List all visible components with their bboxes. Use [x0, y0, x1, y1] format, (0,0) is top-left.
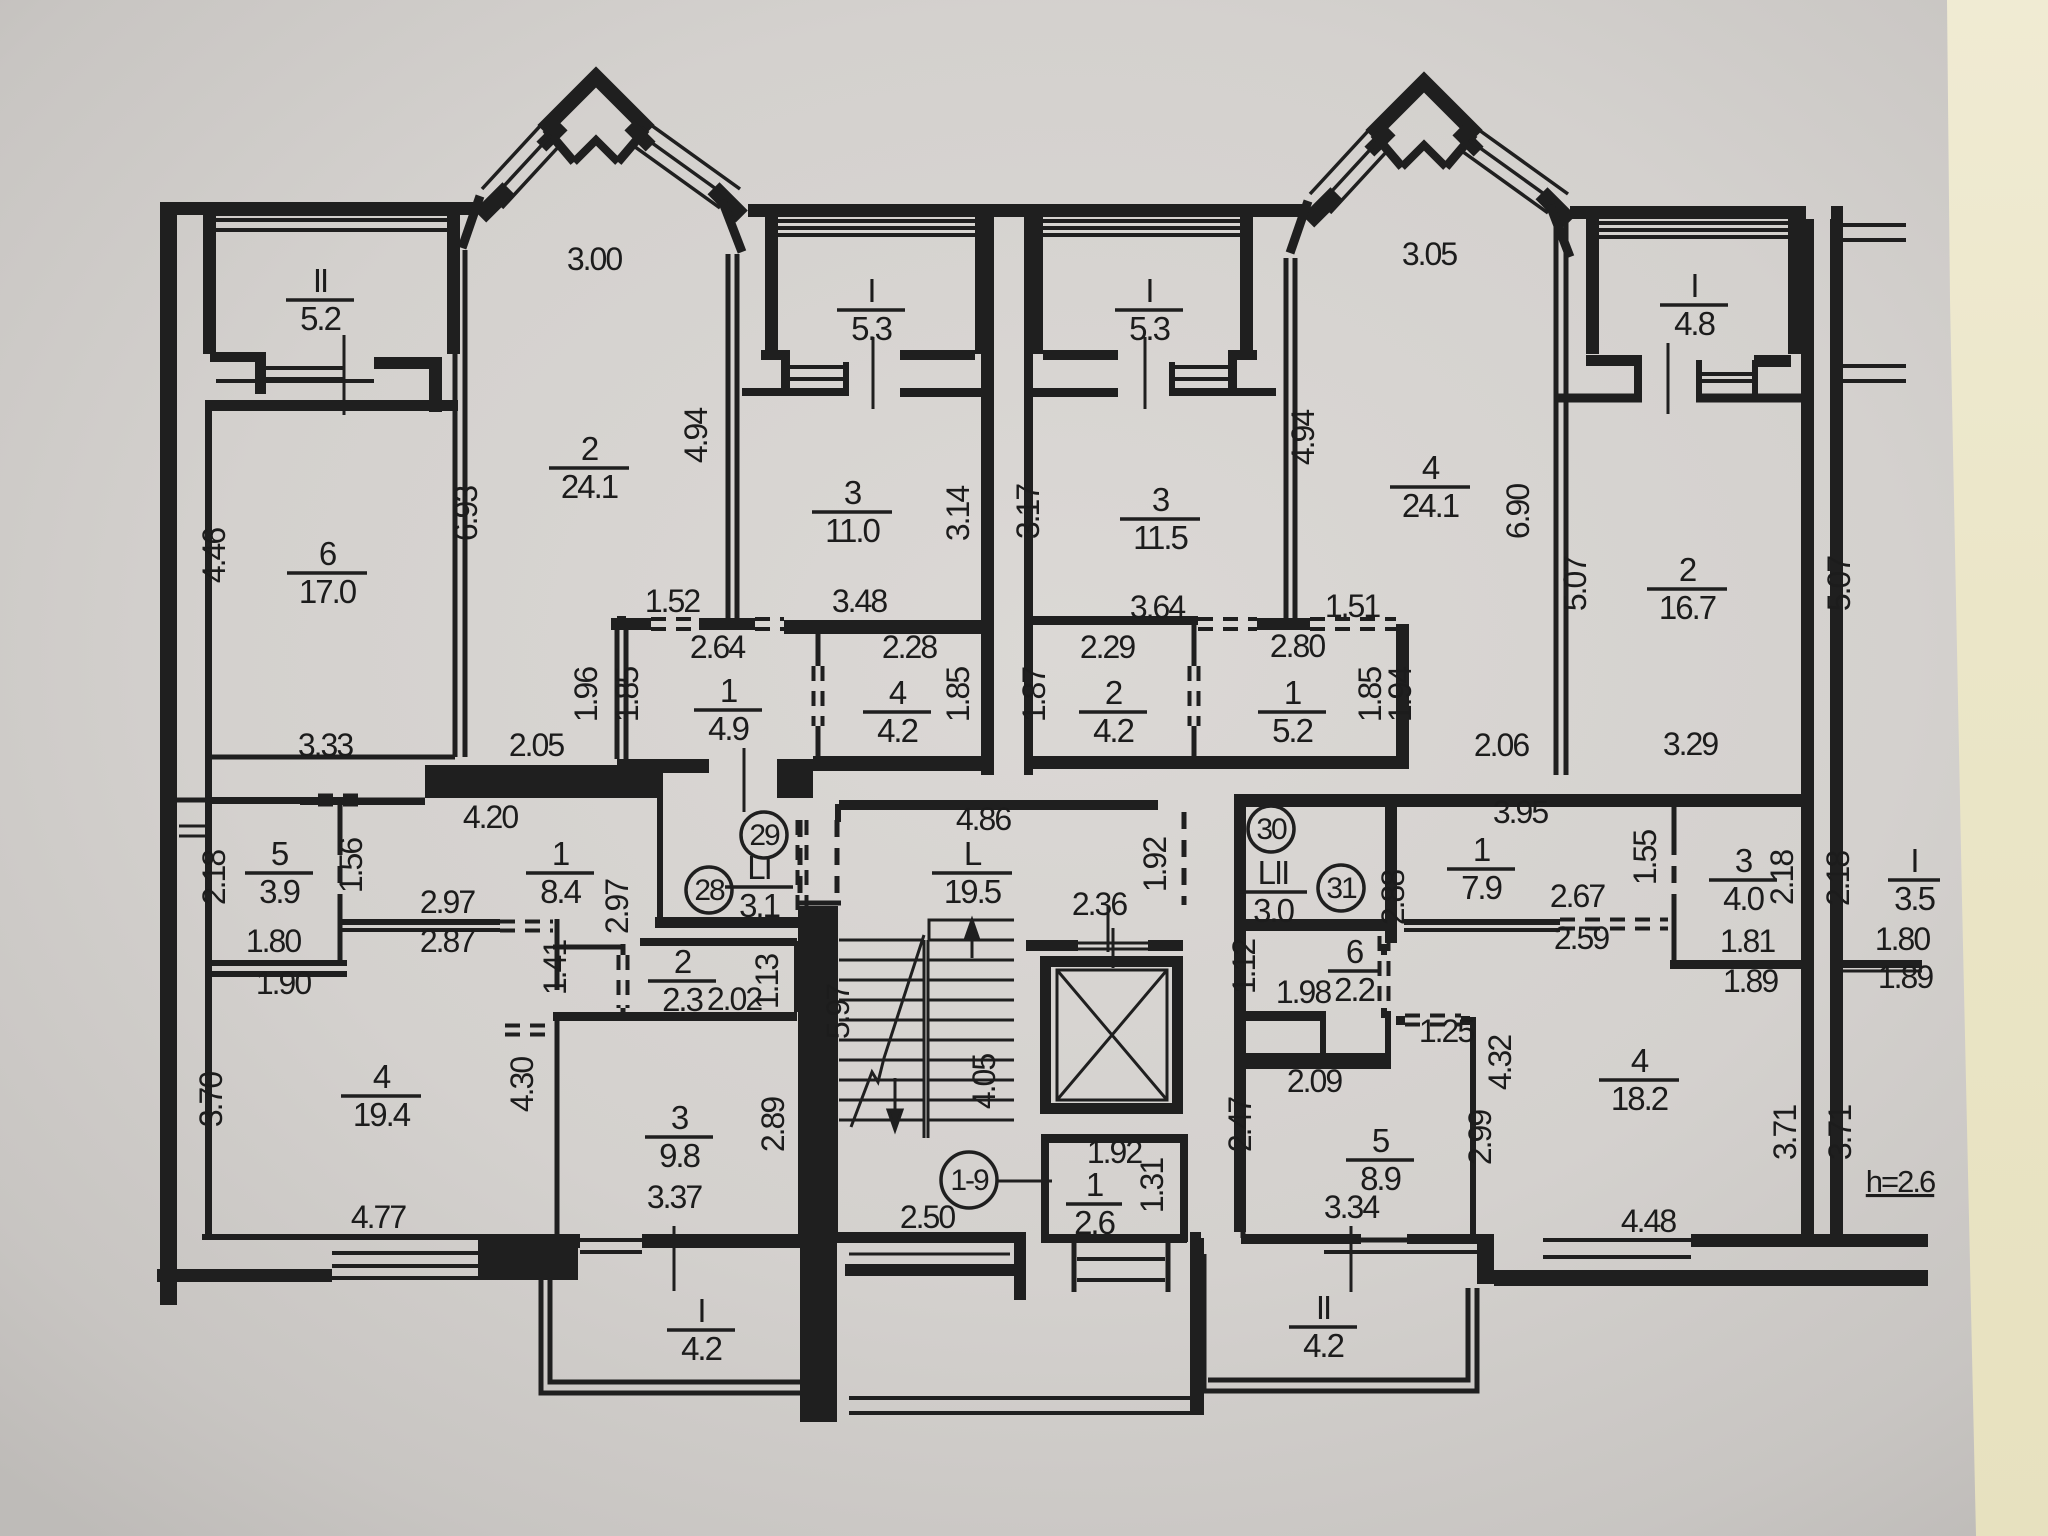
svg-text:1: 1: [1086, 1166, 1103, 1203]
svg-text:3.71: 3.71: [1822, 1105, 1858, 1160]
svg-text:2.18: 2.18: [196, 850, 232, 905]
svg-text:3.48: 3.48: [832, 583, 887, 619]
svg-text:3.17: 3.17: [1010, 484, 1046, 539]
svg-text:4.2: 4.2: [1093, 712, 1134, 749]
svg-text:3.1: 3.1: [739, 887, 780, 924]
svg-text:2.97: 2.97: [420, 884, 475, 920]
svg-text:5.3: 5.3: [1129, 310, 1170, 347]
svg-text:1.12: 1.12: [1226, 939, 1262, 994]
svg-text:3.34: 3.34: [1324, 1189, 1379, 1225]
svg-text:4.77: 4.77: [351, 1199, 406, 1235]
svg-text:2.59: 2.59: [1554, 920, 1609, 956]
svg-text:1.85: 1.85: [940, 667, 976, 722]
svg-text:30: 30: [1256, 813, 1287, 846]
svg-text:1: 1: [1284, 674, 1301, 711]
svg-text:31: 31: [1326, 872, 1357, 905]
svg-text:II: II: [313, 262, 327, 299]
svg-text:I: I: [867, 272, 874, 309]
svg-text:1.81: 1.81: [1720, 923, 1775, 959]
svg-text:11.5: 11.5: [1133, 519, 1187, 556]
svg-text:2.97: 2.97: [599, 879, 635, 934]
svg-text:29: 29: [749, 819, 780, 852]
svg-text:24.1: 24.1: [561, 468, 618, 505]
svg-text:2.18: 2.18: [1820, 851, 1856, 906]
svg-text:5.2: 5.2: [300, 300, 341, 337]
svg-text:LII: LII: [1258, 854, 1289, 891]
svg-text:9.8: 9.8: [659, 1137, 700, 1174]
svg-text:4.30: 4.30: [504, 1057, 540, 1112]
svg-text:4.48: 4.48: [1621, 1203, 1676, 1239]
svg-text:2: 2: [674, 943, 691, 980]
svg-text:1.89: 1.89: [1878, 959, 1933, 995]
svg-text:6: 6: [1346, 933, 1363, 970]
svg-text:1: 1: [720, 672, 737, 709]
svg-text:2.50: 2.50: [900, 1199, 955, 1235]
svg-text:4: 4: [889, 674, 907, 711]
svg-text:3.0: 3.0: [1253, 892, 1295, 929]
svg-text:2.87: 2.87: [420, 923, 475, 959]
svg-text:I: I: [1690, 267, 1697, 304]
svg-text:4.9: 4.9: [708, 710, 749, 747]
svg-text:I: I: [1910, 842, 1917, 879]
svg-text:1.56: 1.56: [333, 838, 369, 893]
svg-text:3.05: 3.05: [1402, 236, 1457, 272]
svg-text:I: I: [697, 1292, 704, 1329]
svg-text:4.2: 4.2: [681, 1330, 722, 1367]
svg-text:L: L: [964, 835, 982, 872]
svg-text:19.5: 19.5: [944, 873, 1001, 910]
svg-text:3.14: 3.14: [940, 486, 976, 541]
svg-text:8.4: 8.4: [540, 873, 582, 910]
svg-text:2.3: 2.3: [662, 981, 703, 1018]
svg-text:1.92: 1.92: [1137, 837, 1173, 892]
svg-text:4.2: 4.2: [877, 712, 918, 749]
svg-text:28: 28: [694, 874, 725, 907]
svg-text:2.18: 2.18: [1764, 850, 1800, 905]
svg-text:6.90: 6.90: [1500, 484, 1536, 539]
svg-text:4.86: 4.86: [956, 801, 1011, 837]
svg-text:3: 3: [1152, 481, 1169, 518]
svg-text:2.99: 2.99: [1462, 1110, 1498, 1165]
svg-text:5: 5: [1372, 1122, 1389, 1159]
svg-text:4.2: 4.2: [1303, 1327, 1344, 1364]
svg-text:1.80: 1.80: [1875, 921, 1930, 957]
svg-text:3.9: 3.9: [259, 873, 300, 910]
svg-text:2.89: 2.89: [755, 1097, 791, 1152]
svg-text:1.31: 1.31: [1134, 1158, 1170, 1213]
svg-text:2.06: 2.06: [1474, 727, 1529, 763]
svg-text:1.52: 1.52: [645, 583, 700, 619]
svg-text:I: I: [1145, 272, 1152, 309]
svg-text:2.67: 2.67: [1550, 878, 1605, 914]
svg-text:16.7: 16.7: [1659, 589, 1716, 626]
svg-text:1.94: 1.94: [1382, 667, 1418, 722]
svg-text:1.51: 1.51: [1325, 588, 1380, 624]
svg-text:3.70: 3.70: [193, 1072, 229, 1127]
svg-text:3.37: 3.37: [647, 1179, 702, 1215]
svg-text:6: 6: [319, 535, 336, 572]
svg-text:5.07: 5.07: [1557, 556, 1593, 611]
svg-text:3.64: 3.64: [1130, 589, 1185, 625]
svg-text:19.4: 19.4: [353, 1096, 411, 1133]
svg-text:2.2: 2.2: [1334, 971, 1375, 1008]
svg-text:2.09: 2.09: [1287, 1063, 1342, 1099]
svg-text:11.0: 11.0: [825, 512, 880, 549]
svg-text:1.55: 1.55: [1627, 830, 1663, 885]
svg-text:4: 4: [1631, 1042, 1649, 1079]
svg-text:1.90: 1.90: [256, 965, 311, 1001]
svg-text:3: 3: [844, 474, 861, 511]
svg-text:4.94: 4.94: [1285, 410, 1321, 465]
svg-text:1.41: 1.41: [537, 940, 573, 995]
svg-text:1.98: 1.98: [1276, 974, 1331, 1010]
svg-text:6.93: 6.93: [448, 486, 484, 541]
svg-text:4.46: 4.46: [196, 528, 232, 583]
svg-text:3.5: 3.5: [1894, 880, 1935, 917]
svg-text:5.07: 5.07: [1821, 556, 1857, 611]
svg-text:17.0: 17.0: [299, 573, 357, 610]
svg-text:5: 5: [271, 835, 288, 872]
svg-text:1: 1: [1473, 831, 1490, 868]
svg-text:4.32: 4.32: [1482, 1035, 1518, 1090]
svg-text:1.89: 1.89: [1723, 963, 1778, 999]
svg-text:4: 4: [373, 1058, 391, 1095]
svg-text:5.2: 5.2: [1272, 712, 1313, 749]
svg-text:3.95: 3.95: [1493, 794, 1548, 830]
svg-text:2.47: 2.47: [1222, 1097, 1258, 1152]
svg-text:4.94: 4.94: [678, 408, 714, 463]
svg-text:h=2.6: h=2.6: [1866, 1164, 1935, 1199]
svg-text:1.96: 1.96: [568, 667, 604, 722]
svg-text:1-9: 1-9: [950, 1164, 989, 1197]
svg-text:2.80: 2.80: [1270, 628, 1325, 664]
svg-text:2.88: 2.88: [1375, 870, 1411, 925]
svg-text:2.29: 2.29: [1080, 629, 1135, 665]
svg-text:3.71: 3.71: [1767, 1105, 1803, 1160]
svg-text:7.9: 7.9: [1461, 869, 1502, 906]
svg-text:2.6: 2.6: [1074, 1204, 1115, 1241]
svg-text:2: 2: [581, 430, 598, 467]
svg-text:18.2: 18.2: [1611, 1080, 1668, 1117]
svg-text:3.33: 3.33: [298, 727, 353, 763]
svg-text:1.80: 1.80: [246, 923, 301, 959]
svg-text:3: 3: [1735, 842, 1752, 879]
svg-text:3.00: 3.00: [567, 241, 622, 277]
svg-text:4.20: 4.20: [463, 799, 518, 835]
svg-text:2.36: 2.36: [1072, 886, 1127, 922]
svg-text:5.97: 5.97: [820, 984, 856, 1039]
svg-text:II: II: [1316, 1289, 1330, 1326]
svg-text:3: 3: [671, 1099, 688, 1136]
svg-text:1.25: 1.25: [1419, 1013, 1474, 1049]
svg-text:24.1: 24.1: [1402, 487, 1459, 524]
svg-text:2: 2: [1679, 551, 1696, 588]
svg-text:2: 2: [1105, 674, 1122, 711]
svg-text:2.05: 2.05: [509, 727, 564, 763]
svg-text:1: 1: [552, 835, 569, 872]
svg-text:1.13: 1.13: [749, 954, 785, 1009]
svg-text:2.28: 2.28: [882, 629, 937, 665]
svg-text:4.0: 4.0: [1723, 880, 1765, 917]
svg-text:1.87: 1.87: [1016, 667, 1052, 722]
svg-text:4.8: 4.8: [1674, 305, 1715, 342]
svg-text:4.05: 4.05: [966, 1054, 1002, 1109]
svg-text:5.3: 5.3: [851, 310, 892, 347]
svg-text:4: 4: [1422, 449, 1440, 486]
svg-text:2.64: 2.64: [690, 629, 745, 665]
svg-text:1.85: 1.85: [609, 667, 645, 722]
svg-text:3.29: 3.29: [1663, 726, 1718, 762]
